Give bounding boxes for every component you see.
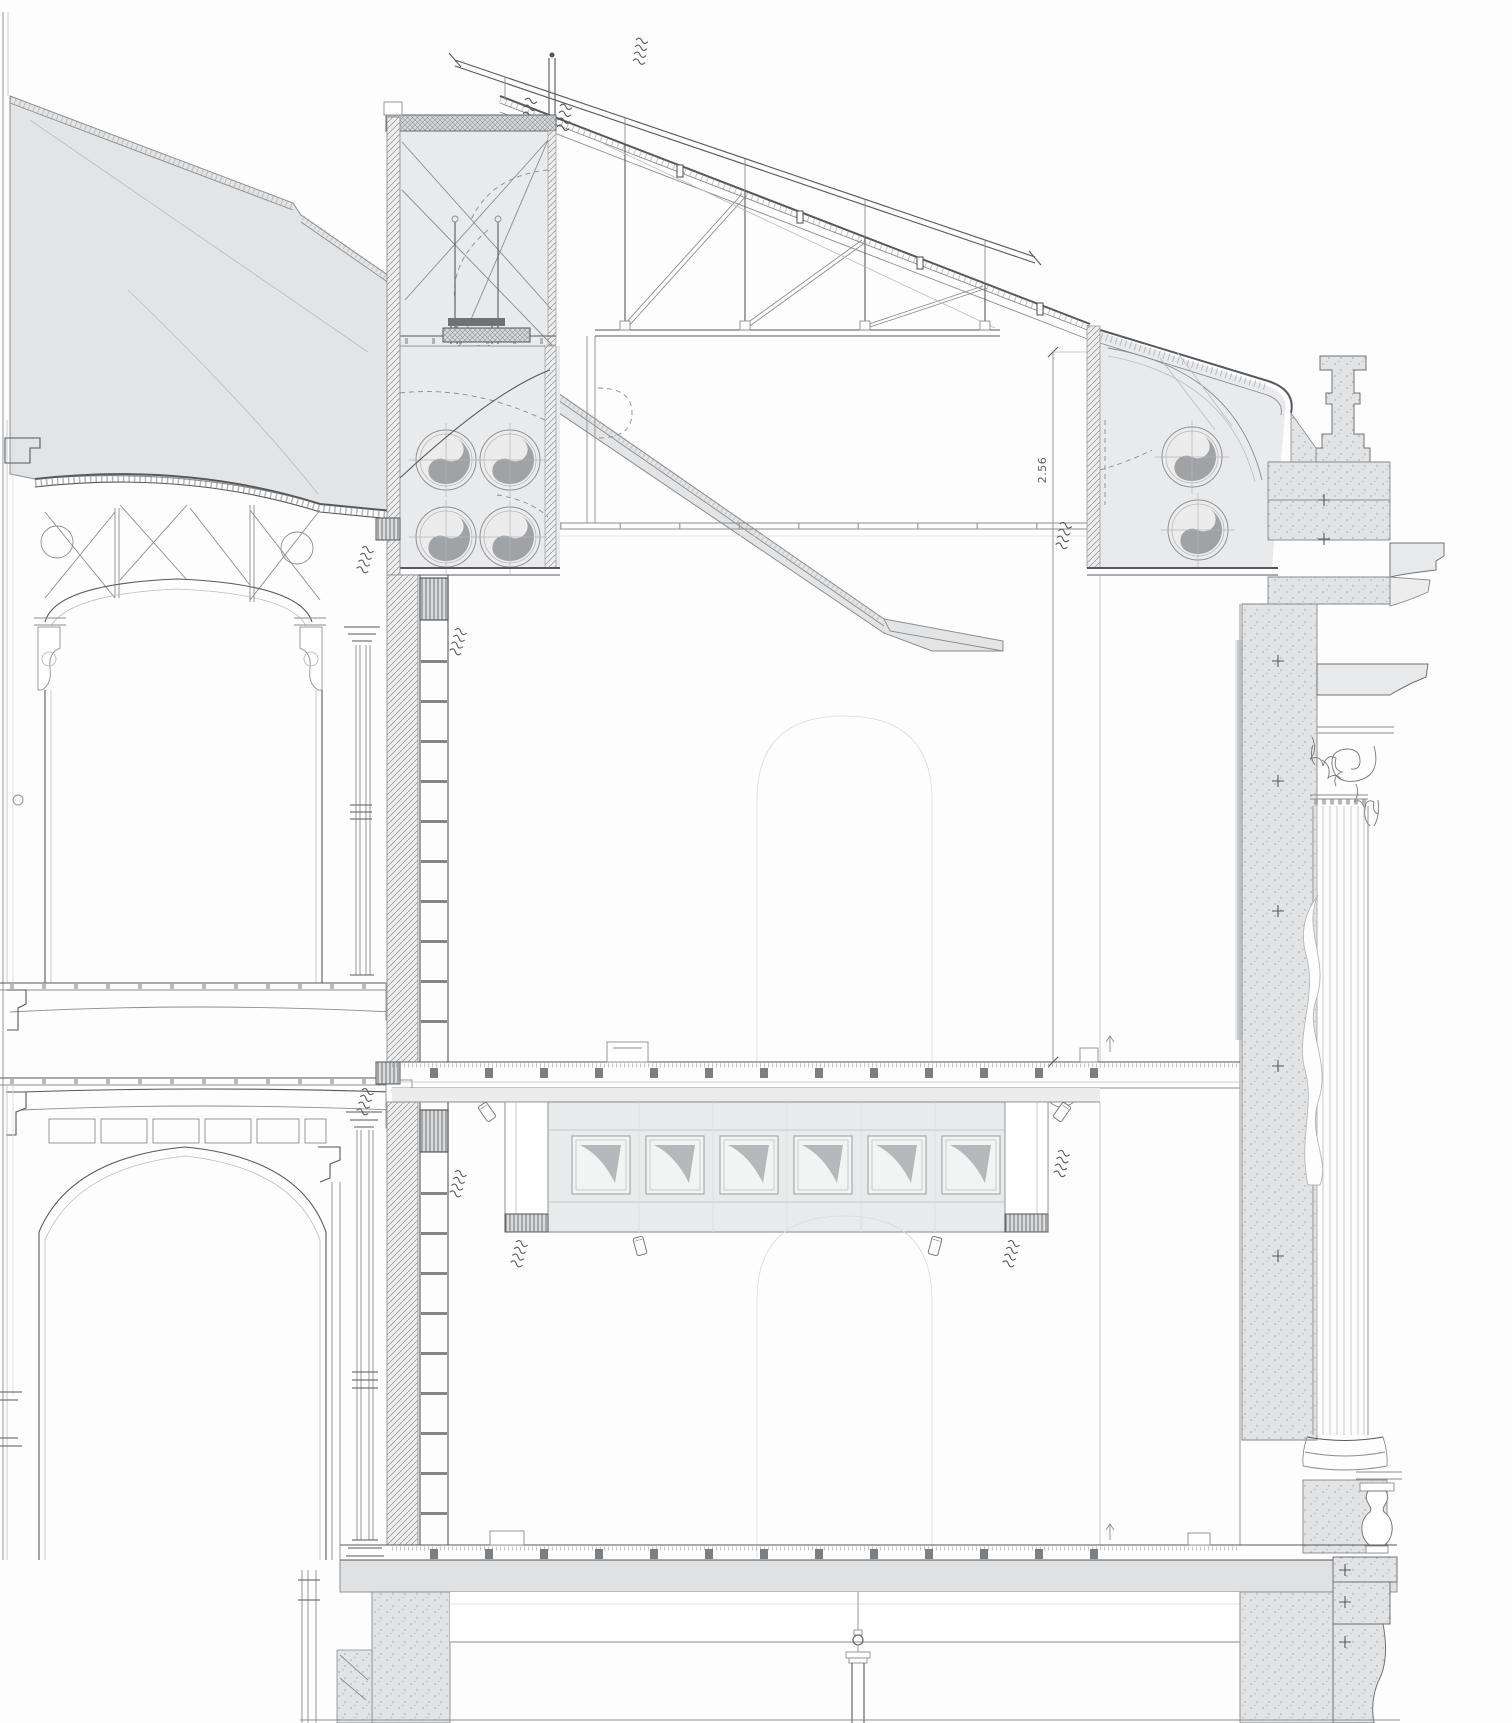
dimension-label: 2.56	[1036, 457, 1049, 484]
fan-room-right-wall	[545, 346, 556, 568]
basement-column	[846, 1652, 870, 1723]
basement-pier-right	[1240, 1592, 1333, 1723]
attic-parapet	[384, 102, 402, 115]
spandrel-panels	[49, 1119, 326, 1143]
monitor-grille-left	[505, 1214, 548, 1232]
left-upper-floor	[0, 983, 410, 1030]
floor-equipment-box	[607, 1042, 648, 1062]
section-canvas: 2.56	[0, 0, 1512, 1723]
monitor-grille-right	[1005, 1214, 1048, 1232]
attic-room	[384, 102, 556, 345]
lower-left-pilaster	[298, 1570, 320, 1723]
faint-arch-upper	[757, 716, 932, 1062]
basement	[300, 1557, 1400, 1723]
attic-right-wall	[548, 131, 556, 345]
cornice-b	[1390, 577, 1430, 606]
wall-ladder-upper	[420, 575, 448, 1062]
trapdoor-beam	[443, 328, 530, 342]
truss-node-plates	[620, 321, 990, 330]
left-fan-room	[392, 328, 632, 575]
left-lower-bay	[0, 1078, 412, 1723]
cornice-a	[1390, 543, 1444, 577]
truss-diagonals	[600, 142, 995, 328]
basement-pier-left	[372, 1592, 450, 1723]
ground-slab	[340, 1560, 1397, 1592]
sculpture-silhouette	[1302, 895, 1322, 1185]
faint-arch-lower	[757, 1216, 932, 1558]
wall-bracket-upper	[376, 518, 400, 540]
right-fan-room	[1055, 326, 1292, 575]
cornice-c	[1317, 664, 1428, 695]
air-grille-lower	[420, 1110, 448, 1152]
upper-arch	[45, 579, 312, 622]
fan-room-left-wall	[1087, 326, 1100, 568]
chimney	[1316, 356, 1370, 462]
architectural-section-drawing: 2.56	[0, 0, 1512, 1723]
arch-corbel	[318, 1147, 340, 1182]
skylight-monitor	[392, 1088, 1100, 1268]
hall-ceiling	[558, 336, 1087, 536]
upper-floor	[392, 1042, 1240, 1088]
purlin-cleats	[677, 165, 1043, 315]
dimension-line: 2.56	[1036, 347, 1087, 1067]
wall-ladder-lower	[420, 1102, 448, 1545]
lower-colonnette	[346, 1112, 384, 1556]
upper-colonnette	[344, 627, 380, 983]
roof-mast	[549, 58, 555, 117]
column-flutes	[1313, 806, 1368, 1435]
plinth-foot	[1333, 1624, 1386, 1723]
vault-lattice-bracing	[41, 505, 320, 602]
roof-deck	[500, 96, 1090, 324]
attic-roof-band	[386, 115, 556, 131]
air-grille-upper	[420, 578, 448, 620]
